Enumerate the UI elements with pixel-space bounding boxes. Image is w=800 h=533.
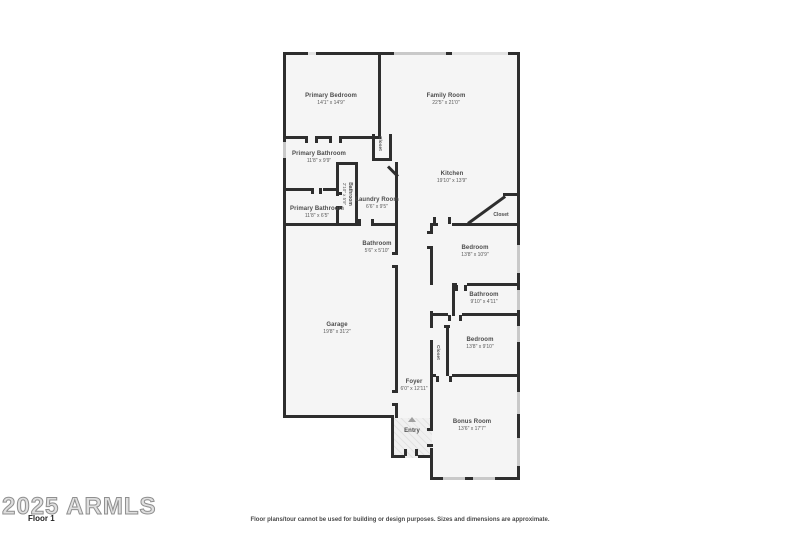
door-frame [436, 376, 439, 382]
room-name: Bathroom [347, 182, 353, 206]
wall-segment [395, 226, 398, 254]
window-segment [394, 52, 446, 55]
room-dims: 2'10" x 5'9" [342, 182, 347, 206]
room-label-primary-bedroom: Primary Bedroom 14'1" x 14'9" [305, 93, 357, 107]
room-dims: 11'8" x 9'9" [292, 159, 346, 165]
room-name: Bathroom [362, 241, 391, 248]
door-frame [427, 444, 433, 447]
wall-segment [378, 52, 381, 136]
wall-segment [467, 283, 518, 286]
wall-segment [336, 162, 339, 196]
room-name: Bonus Room [453, 419, 491, 426]
door-frame [392, 252, 398, 255]
door-frame [311, 188, 314, 194]
door-frame [464, 285, 467, 291]
room-label-primary-bathroom-1: Primary Bathroom 11'8" x 9'9" [292, 151, 346, 165]
room-label-bonus-room: Bonus Room 13'6" x 17'7" [453, 419, 491, 433]
wall-segment [341, 136, 381, 139]
door-frame [404, 449, 407, 456]
floor-plan: Primary Bedroom 14'1" x 14'9" Family Roo… [0, 0, 800, 533]
wall-segment [283, 52, 383, 55]
door-frame [339, 136, 342, 143]
door-frame [433, 217, 436, 224]
room-dims: 13'6" x 17'7" [453, 427, 491, 433]
room-dims: 14'1" x 14'9" [305, 101, 357, 107]
wall-segment [430, 249, 433, 285]
armls-watermark: 2025 ARMLS [2, 493, 157, 521]
room-name: Primary Bedroom [305, 93, 357, 100]
door-frame [329, 136, 332, 143]
wall-segment [355, 162, 358, 226]
room-name: Laundry Room [355, 197, 399, 204]
room-label-bedroom-closet: Closet [436, 345, 441, 360]
window-segment [443, 477, 465, 480]
door-frame [305, 136, 308, 143]
room-name: Garage [323, 322, 350, 329]
wall-segment [395, 406, 398, 418]
wall-segment [430, 376, 433, 428]
disclaimer-text: Floor plans/tour cannot be used for buil… [250, 517, 549, 523]
door-frame [371, 219, 374, 226]
room-area-entry [391, 418, 432, 458]
wall-segment [391, 418, 394, 458]
room-label-bedroom-3: Bedroom 13'8" x 9'10" [466, 337, 493, 351]
room-label-kitchen-closet: Closet [493, 212, 508, 218]
window-segment [517, 245, 520, 273]
door-frame [448, 315, 451, 321]
room-name: Entry [404, 428, 420, 435]
door-frame [315, 136, 318, 143]
door-frame [427, 246, 433, 249]
room-name: Primary Bathroom [290, 206, 344, 213]
wall-segment [430, 340, 433, 376]
room-dims: 19'10" x 13'9" [437, 179, 467, 185]
door-frame [415, 449, 418, 456]
room-dims: 11'8" x 6'5" [290, 214, 344, 220]
room-label-bedroom-2: Bedroom 13'8" x 10'9" [461, 245, 488, 259]
room-dims: 6'6" x 9'5" [355, 205, 399, 211]
room-label-bathroom-2: Bathroom 9'10" x 4'11" [469, 292, 498, 306]
room-label-primary-bathroom-2: Primary Bathroom 11'8" x 6'5" [290, 206, 344, 220]
wall-segment [446, 328, 449, 376]
door-frame [358, 219, 361, 226]
wall-segment [395, 268, 398, 392]
window-segment [452, 52, 508, 55]
door-frame [459, 315, 462, 321]
room-dims: 13'8" x 9'10" [466, 345, 493, 351]
room-dims: 5'6" x 5'10" [362, 249, 391, 255]
room-label-hall-closet: Closet [378, 136, 383, 151]
door-frame [448, 217, 451, 224]
wall-segment [452, 223, 518, 226]
wall-segment [462, 313, 518, 316]
room-name: Kitchen [437, 171, 467, 178]
room-name: Family Room [427, 93, 466, 100]
window-segment [473, 477, 495, 480]
room-dims: 6'0" x 12'11" [400, 387, 427, 393]
door-frame [444, 325, 450, 328]
room-name: Bathroom [469, 292, 498, 299]
room-name: Foyer [400, 379, 427, 386]
room-dims: 13'8" x 10'9" [461, 253, 488, 259]
room-label-garage: Garage 19'8" x 31'2" [323, 322, 350, 336]
wall-segment [283, 188, 311, 191]
room-label-entry: Entry [404, 428, 420, 435]
door-frame [427, 428, 433, 431]
window-segment [308, 52, 316, 55]
room-dims: 19'8" x 31'2" [323, 330, 350, 336]
door-frame [455, 285, 458, 291]
wall-segment [372, 158, 392, 161]
room-name: Bedroom [461, 245, 488, 252]
wall-segment [430, 313, 448, 316]
door-frame [449, 376, 452, 382]
door-frame [392, 265, 398, 268]
room-dims: 9'10" x 4'11" [469, 300, 498, 306]
room-label-laundry-room: Laundry Room 6'6" x 9'5" [355, 197, 399, 211]
door-frame [392, 403, 398, 406]
wall-segment [391, 455, 405, 458]
room-name: Primary Bathroom [292, 151, 346, 158]
room-label-family-room: Family Room 22'5" x 21'0" [427, 93, 466, 107]
wall-segment [418, 455, 433, 458]
entry-direction-icon [408, 417, 416, 422]
window-segment [517, 392, 520, 414]
room-area-right-block [431, 225, 519, 480]
wall-segment [389, 134, 392, 161]
room-dims: 22'5" x 21'0" [427, 101, 466, 107]
wall-segment [283, 136, 307, 139]
floor-label: Floor 1 [28, 514, 55, 523]
room-label-foyer: Foyer 6'0" x 12'11" [400, 379, 427, 393]
door-frame [319, 188, 322, 194]
window-segment [517, 290, 520, 310]
door-frame [427, 231, 433, 234]
room-name: Bedroom [466, 337, 493, 344]
room-label-water-closet: Bathroom 2'10" x 5'9" [342, 182, 352, 206]
room-label-kitchen: Kitchen 19'10" x 13'9" [437, 171, 467, 185]
window-segment [283, 142, 286, 158]
room-label-hall-bathroom: Bathroom 5'6" x 5'10" [362, 241, 391, 255]
wall-segment [452, 374, 518, 377]
wall-segment [283, 52, 286, 418]
door-frame [392, 390, 398, 393]
wall-segment [430, 448, 433, 480]
window-segment [517, 326, 520, 342]
wall-segment [503, 193, 518, 196]
wall-segment [283, 415, 394, 418]
window-segment [517, 438, 520, 466]
wall-segment [283, 223, 360, 226]
